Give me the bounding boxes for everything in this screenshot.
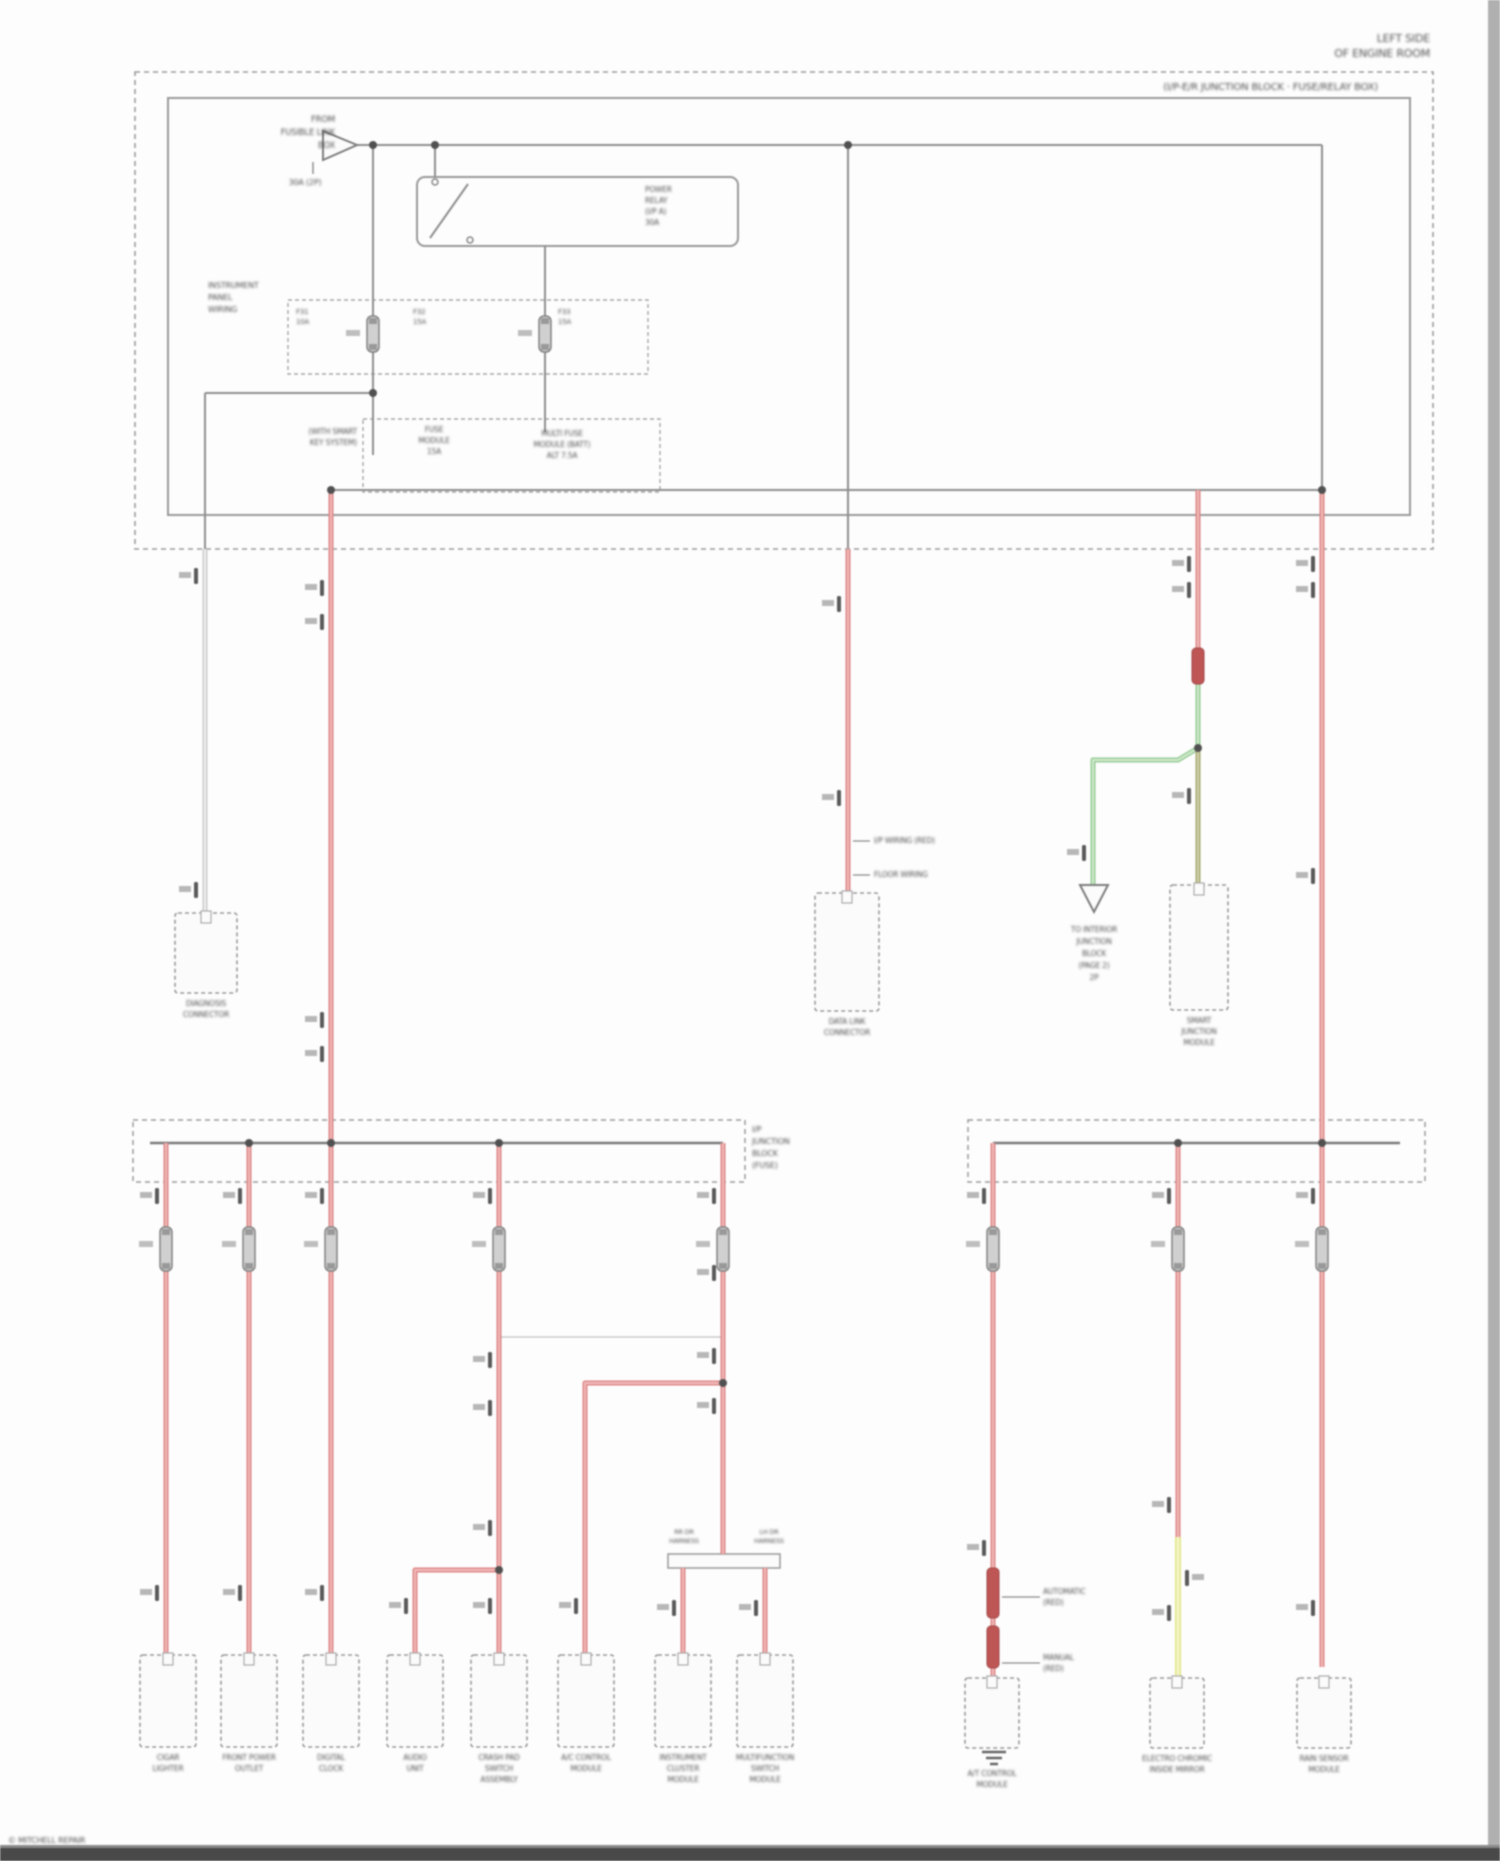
- connector-pin-mark: [1082, 845, 1086, 861]
- component-cigar-lighter: [140, 1655, 196, 1747]
- connector-text-smudge: [1172, 792, 1184, 798]
- connector-pin-mark: [1311, 868, 1315, 884]
- component-front-outlet-label: OUTLET: [235, 1764, 264, 1773]
- component-rain-sensor-label: MODULE: [1308, 1765, 1340, 1774]
- connector-text-smudge: [1296, 560, 1308, 566]
- component-cluster: [655, 1655, 711, 1747]
- component-diagnosis-pin: [201, 911, 211, 923]
- left-wiring-label: WIRING: [208, 305, 237, 314]
- connector-pin-mark: [488, 1520, 492, 1536]
- connector-text-smudge: [223, 1192, 235, 1198]
- fuse-cap-top: [719, 1229, 727, 1235]
- component-audio: [387, 1655, 443, 1747]
- connector-pin-mark: [194, 882, 198, 898]
- connector-text-smudge: [305, 1589, 317, 1595]
- component-clock: [303, 1655, 359, 1747]
- fusible-link-label: FROM: [311, 115, 335, 125]
- splitter-left-label: HARNESS: [669, 1537, 699, 1545]
- connector-text-smudge: [473, 1356, 485, 1362]
- component-front-outlet: [221, 1655, 277, 1747]
- component-datalink: [815, 893, 879, 1011]
- fusible-link-label: FUSIBLE LINK: [281, 128, 336, 138]
- offpage-label: (PAGE 2): [1078, 961, 1109, 970]
- component-ac-module-label: A/C CONTROL: [561, 1753, 612, 1762]
- smartkey-note: KEY SYSTEM): [310, 438, 358, 447]
- connector-pin-mark: [574, 1598, 578, 1614]
- junction-dot: [495, 1566, 503, 1574]
- connector-text-smudge: [1296, 1604, 1308, 1610]
- connector-pin-mark: [238, 1585, 242, 1601]
- connector-text-smudge: [967, 1544, 979, 1550]
- fuse-cap-bottom: [245, 1263, 253, 1269]
- connector-text-smudge: [305, 1192, 317, 1198]
- connector-pin-mark: [1311, 1600, 1315, 1616]
- fuse-cap-top: [162, 1229, 170, 1235]
- connector-text-smudge: [473, 1192, 485, 1198]
- fuse-subbox-upper: [288, 300, 648, 374]
- wire-red-l4-branch-core: [415, 1570, 499, 1655]
- connector-text-smudge: [140, 1192, 152, 1198]
- component-at-control-pin: [987, 1676, 997, 1688]
- fuse-text-smudge: [304, 1241, 318, 1247]
- component-cluster-label: INSTRUMENT: [659, 1753, 707, 1762]
- fuse-cap-bottom: [989, 1263, 997, 1269]
- component-front-outlet-label: FRONT POWER: [222, 1753, 276, 1762]
- wire-red-l4-branch: [415, 1570, 499, 1655]
- component-cigar-lighter-pin: [163, 1653, 173, 1665]
- connector-text-smudge: [305, 1050, 317, 1056]
- component-multifunction-label: MULTIFUNCTION: [736, 1753, 794, 1762]
- right-callout-1: AUTOMATIC: [1043, 1587, 1085, 1596]
- relay-pin: [467, 237, 473, 243]
- connector-pin-mark: [155, 1585, 159, 1601]
- connector-pin-mark: [1187, 788, 1191, 804]
- connector-pin-mark: [320, 614, 324, 630]
- fuse-cap-top: [1318, 1229, 1326, 1235]
- fuse-cap-top: [369, 318, 377, 324]
- component-rain-sensor-pin: [1319, 1676, 1329, 1688]
- connector-text-smudge: [1296, 872, 1308, 878]
- connector-pin-mark: [1187, 582, 1191, 598]
- fuse-subbox-lower: [363, 419, 660, 492]
- right-callout-1: (RED): [1043, 1598, 1064, 1607]
- fuse-text-smudge: [518, 330, 532, 336]
- component-crashpad-switch-label: SWITCH: [485, 1764, 513, 1773]
- component-ec-mirror-label: INSIDE MIRROR: [1149, 1765, 1204, 1774]
- fuse-cap-top: [989, 1229, 997, 1235]
- connector-pin-mark: [1311, 1188, 1315, 1204]
- fusebox-gap-label: BLOCK: [752, 1149, 779, 1158]
- connector-pin-mark: [320, 1046, 324, 1062]
- component-multifunction-label: SWITCH: [751, 1764, 779, 1773]
- fuse-text-smudge: [139, 1241, 153, 1247]
- junction-dot: [369, 141, 377, 149]
- component-clock-label: DIGITAL: [317, 1753, 346, 1762]
- fuse-cap-top: [245, 1229, 253, 1235]
- relay-label: POWER: [645, 185, 672, 194]
- fuse-cap-bottom: [1318, 1263, 1326, 1269]
- connector-pin-mark: [837, 790, 841, 806]
- connector-text-smudge: [657, 1604, 669, 1610]
- offpage-label: JUNCTION: [1075, 937, 1111, 946]
- connector-pin-mark: [1187, 556, 1191, 572]
- connector-text-smudge: [305, 618, 317, 624]
- right-callout-2: (RED): [1043, 1664, 1064, 1673]
- connector-pin-mark: [837, 596, 841, 612]
- component-smart-junction-label: JUNCTION: [1180, 1027, 1216, 1036]
- fuse-cap-bottom: [1174, 1263, 1182, 1269]
- connector-pin-mark: [238, 1188, 242, 1204]
- fuse-text-smudge: [1151, 1241, 1165, 1247]
- connector-text-smudge: [559, 1602, 571, 1608]
- fuse-cap-bottom: [369, 344, 377, 350]
- junction-dot: [1194, 744, 1202, 752]
- connector-pin-mark: [320, 1585, 324, 1601]
- inline-connector: [987, 1568, 999, 1618]
- component-crashpad-switch: [471, 1655, 527, 1747]
- corner-label: OF ENGINE ROOM: [1334, 47, 1430, 60]
- connector-text-smudge: [697, 1402, 709, 1408]
- connector-pin-mark: [1311, 556, 1315, 572]
- connector-text-smudge: [305, 1016, 317, 1022]
- connector-text-smudge: [179, 886, 191, 892]
- fuse-cap-top: [1174, 1229, 1182, 1235]
- component-multifunction: [737, 1655, 793, 1747]
- connector-text-smudge: [697, 1269, 709, 1275]
- splitter-right-label: LH DR: [759, 1528, 779, 1536]
- connector-pin-mark: [155, 1188, 159, 1204]
- connector-pin-mark: [672, 1600, 676, 1616]
- connector-pin-mark: [754, 1600, 758, 1616]
- connector-pin-mark: [712, 1188, 716, 1204]
- junction-dot: [844, 141, 852, 149]
- connector-text-smudge: [1296, 1192, 1308, 1198]
- connector-text-smudge: [967, 1192, 979, 1198]
- connector-text-smudge: [179, 572, 191, 578]
- connector-pin-mark: [320, 580, 324, 596]
- multifuse-label: MULTI FUSE: [541, 429, 583, 438]
- connector-pin-mark: [982, 1188, 986, 1204]
- left-fusebox: [133, 1120, 745, 1182]
- splitter-right-label: HARNESS: [754, 1537, 784, 1545]
- relay-pin: [432, 179, 438, 185]
- component-crashpad-switch-label: CRASH PAD: [478, 1753, 520, 1762]
- connector-pin-mark: [1185, 1570, 1189, 1586]
- fuse-f33-label: 15A: [558, 318, 572, 326]
- component-smart-junction-label: SMART: [1187, 1016, 1212, 1025]
- fuse-f33-label: F33: [558, 308, 570, 316]
- fuse-cap-bottom: [541, 344, 549, 350]
- connector-text-smudge: [1296, 586, 1308, 592]
- connector-pin-mark: [488, 1352, 492, 1368]
- junction-dot: [431, 141, 439, 149]
- junction-dot: [245, 1139, 253, 1147]
- smartkey-note: (WITH SMART: [308, 427, 357, 436]
- multifuse-label: ALT 7.5A: [547, 451, 579, 460]
- component-smart-junction: [1170, 885, 1228, 1010]
- fusible-link-rating: 30A (2P): [289, 178, 322, 187]
- connector-text-smudge: [223, 1589, 235, 1595]
- fuse-text-smudge: [346, 330, 360, 336]
- component-datalink-label: CONNECTOR: [824, 1028, 870, 1037]
- component-clock-pin: [326, 1653, 336, 1665]
- fuse-text-smudge: [696, 1241, 710, 1247]
- component-clock-label: CLOCK: [319, 1764, 344, 1773]
- offpage-label: TO INTERIOR: [1070, 925, 1117, 934]
- fuse-module-label: FUSE: [425, 425, 444, 434]
- connector-pin-mark: [712, 1348, 716, 1364]
- left-wiring-label: PANEL: [208, 293, 233, 302]
- component-ec-mirror-pin: [1172, 1676, 1182, 1688]
- fuse-cap-top: [495, 1229, 503, 1235]
- right-callout-2: MANUAL: [1043, 1653, 1075, 1662]
- wire-green-branch-core: [1093, 748, 1198, 885]
- fuse-text-smudge: [472, 1241, 486, 1247]
- fuse-module-label: MODULE: [418, 436, 450, 445]
- fuse-f31-label: 10A: [296, 318, 310, 326]
- fuse-cap-bottom: [495, 1263, 503, 1269]
- connector-text-smudge: [697, 1192, 709, 1198]
- connector-text-smudge: [389, 1602, 401, 1608]
- relay-label: 30A: [645, 218, 660, 227]
- corner-label: LEFT SIDE: [1377, 32, 1431, 45]
- junction-dot: [1318, 1139, 1326, 1147]
- component-cigar-lighter-label: LIGHTER: [153, 1764, 184, 1773]
- connector-pin-mark: [712, 1265, 716, 1281]
- connector-pin-mark: [712, 1398, 716, 1414]
- offpage-label: BLOCK: [1082, 949, 1107, 958]
- connector-pin-mark: [1311, 582, 1315, 598]
- wire-red-l5-branch: [585, 1383, 723, 1655]
- inline-connector: [1192, 648, 1204, 684]
- connector-pin-mark: [982, 1540, 986, 1556]
- connector-text-smudge: [305, 584, 317, 590]
- connector-text-smudge: [1172, 560, 1184, 566]
- junction-dot: [719, 1379, 727, 1387]
- connector-text-smudge: [473, 1524, 485, 1530]
- component-ac-module-label: MODULE: [570, 1764, 602, 1773]
- junction-dot: [369, 389, 377, 397]
- relay-label: RELAY: [645, 196, 668, 205]
- connector-text-smudge: [473, 1602, 485, 1608]
- connector-pin-mark: [488, 1188, 492, 1204]
- wiring-diagram-canvas: DIAGNOSISCONNECTORDATA LINKCONNECTORSMAR…: [0, 0, 1500, 1861]
- connector-text-smudge: [473, 1404, 485, 1410]
- connector-text-smudge: [822, 600, 834, 606]
- offpage-label: 2P: [1090, 973, 1100, 982]
- multifuse-label: MODULE (BATT): [534, 440, 591, 449]
- connector-text-smudge: [1152, 1609, 1164, 1615]
- splitter-bar: [668, 1554, 780, 1568]
- component-smart-junction-pin: [1194, 883, 1204, 895]
- wire-red-l5-branch-core: [585, 1383, 723, 1655]
- connector-text-smudge: [822, 794, 834, 800]
- fusebox-gap-label: JUNCTION: [751, 1137, 790, 1146]
- right-fusebox: [968, 1120, 1425, 1182]
- component-crashpad-switch-pin: [494, 1653, 504, 1665]
- fusible-link-label: BOX: [318, 141, 335, 151]
- component-cigar-lighter-label: CIGAR: [157, 1753, 180, 1762]
- component-at-control-label: A/T CONTROL: [967, 1769, 1017, 1778]
- component-cluster-label: MODULE: [667, 1775, 699, 1784]
- component-ec-mirror-label: ELECTRO CHROMIC: [1142, 1754, 1212, 1763]
- fuse-cap-bottom: [719, 1263, 727, 1269]
- connector-text-smudge: [1067, 849, 1079, 855]
- wire-green-branch: [1093, 748, 1198, 885]
- connector-pin-mark: [488, 1400, 492, 1416]
- wiring-diagram-page: DIAGNOSISCONNECTORDATA LINKCONNECTORSMAR…: [0, 0, 1500, 1861]
- fuse-module-label: 15A: [427, 447, 442, 456]
- junction-dot: [1318, 486, 1326, 494]
- component-datalink-label: DATA LINK: [829, 1017, 867, 1026]
- fuse-cap-bottom: [162, 1263, 170, 1269]
- wire3-callout-1: I/P WIRING (RED): [874, 836, 935, 845]
- fuse-cap-bottom: [327, 1263, 335, 1269]
- fuse-cap-top: [541, 318, 549, 324]
- component-at-control-label: MODULE: [976, 1780, 1008, 1789]
- relay-contact: [430, 184, 468, 238]
- connector-pin-mark: [1167, 1497, 1171, 1513]
- fusebox-gap-label: (FUSE): [752, 1161, 778, 1170]
- fusebox-gap-label: I/P: [752, 1125, 762, 1134]
- connector-pin-mark: [1167, 1188, 1171, 1204]
- component-rain-sensor-label: RAIN SENSOR: [1299, 1754, 1348, 1763]
- component-ac-module: [558, 1655, 614, 1747]
- connector-text-smudge: [1172, 586, 1184, 592]
- splitter-left-label: RR DR: [674, 1528, 694, 1536]
- component-datalink-pin: [842, 891, 852, 903]
- junction-dot: [327, 486, 335, 494]
- fuse-text-smudge: [1295, 1241, 1309, 1247]
- connector-text-smudge: [1192, 1574, 1204, 1580]
- connector-text-smudge: [140, 1589, 152, 1595]
- relay-label: (I/P A): [645, 207, 667, 216]
- fuse-f32-label: F32: [413, 308, 425, 316]
- connector-text-smudge: [697, 1352, 709, 1358]
- left-wiring-label: INSTRUMENT: [208, 281, 259, 290]
- connector-pin-mark: [488, 1598, 492, 1614]
- component-crashpad-switch-label: ASSEMBLY: [480, 1775, 518, 1784]
- connector-pin-mark: [320, 1188, 324, 1204]
- fuse-cap-top: [327, 1229, 335, 1235]
- component-audio-pin: [410, 1653, 420, 1665]
- component-multifunction-label: MODULE: [749, 1775, 781, 1784]
- connector-pin-mark: [194, 568, 198, 584]
- component-multifunction-pin: [760, 1653, 770, 1665]
- component-front-outlet-pin: [244, 1653, 254, 1665]
- junction-box-title: (I/P-E/R JUNCTION BLOCK · FUSE/RELAY BOX…: [1163, 82, 1378, 93]
- right-edge-strip: [1488, 0, 1500, 1861]
- junction-dot: [1174, 1139, 1182, 1147]
- component-cluster-label: CLUSTER: [667, 1764, 699, 1773]
- component-diagnosis-label: CONNECTOR: [183, 1010, 229, 1019]
- inline-connector: [987, 1626, 999, 1668]
- junction-dot: [495, 1139, 503, 1147]
- connector-text-smudge: [739, 1604, 751, 1610]
- component-audio-label: UNIT: [406, 1764, 424, 1773]
- component-audio-label: AUDIO: [403, 1753, 427, 1762]
- inner-junction-box: [168, 98, 1410, 515]
- bottom-bar: [0, 1848, 1500, 1861]
- connector-text-smudge: [1152, 1192, 1164, 1198]
- junction-dot: [327, 1139, 335, 1147]
- connector-pin-mark: [320, 1012, 324, 1028]
- fuse-text-smudge: [966, 1241, 980, 1247]
- component-diagnosis-label: DIAGNOSIS: [186, 999, 227, 1008]
- connector-text-smudge: [1152, 1501, 1164, 1507]
- footer-copyright: © MITCHELL REPAIR: [8, 1836, 86, 1845]
- component-diagnosis: [175, 913, 237, 993]
- component-smart-junction-label: MODULE: [1183, 1038, 1215, 1047]
- fuse-f31-label: F31: [296, 308, 308, 316]
- bottom-bar-highlight: [0, 1845, 1500, 1848]
- fuse-text-smudge: [222, 1241, 236, 1247]
- connector-pin-mark: [404, 1598, 408, 1614]
- fuse-f32-label: 15A: [413, 318, 427, 326]
- wire3-callout-2: FLOOR WIRING: [874, 870, 928, 879]
- connector-pin-mark: [1167, 1605, 1171, 1621]
- component-ac-module-pin: [581, 1653, 591, 1665]
- component-cluster-pin: [678, 1653, 688, 1665]
- offpage-connector-triangle: [1080, 885, 1108, 912]
